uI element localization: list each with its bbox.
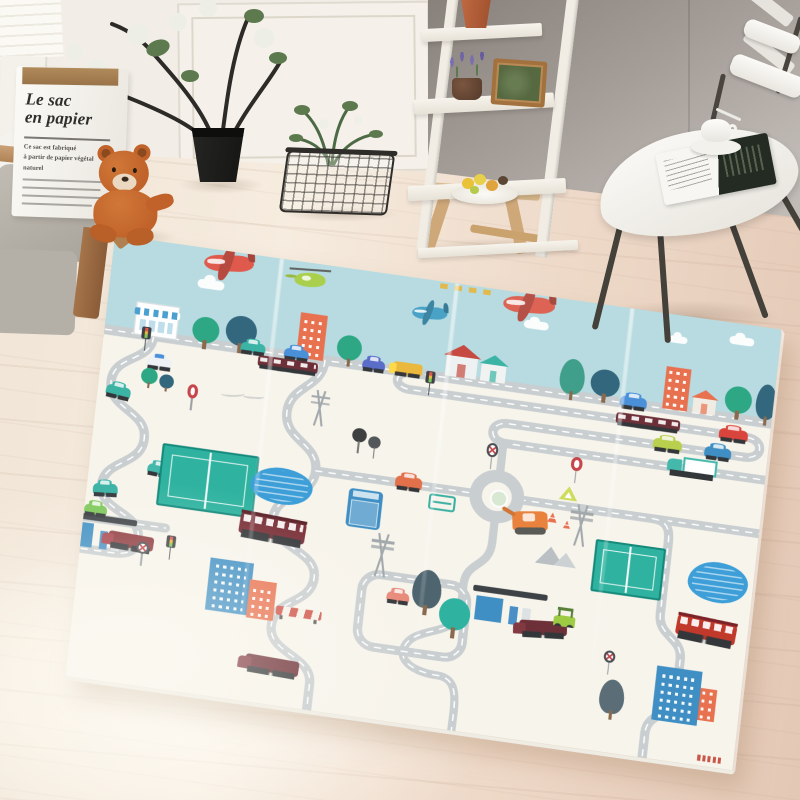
teddy-nose bbox=[121, 177, 128, 182]
mat-item-tree bbox=[437, 596, 472, 632]
mat-item-pond bbox=[686, 558, 750, 606]
mat-item-poplar bbox=[558, 357, 587, 396]
mat-item-heli bbox=[294, 272, 326, 288]
mat-item-brand bbox=[697, 754, 722, 764]
coffee-cup bbox=[701, 119, 731, 142]
mat-item-bus bbox=[675, 612, 738, 646]
mat-item-bldg bbox=[697, 688, 717, 722]
mat-item-cart bbox=[553, 606, 582, 630]
bag-title: Le sac en papier bbox=[25, 90, 94, 128]
fruit-dark bbox=[498, 176, 508, 185]
mat-item-car bbox=[704, 446, 732, 461]
mat-item-tri bbox=[559, 485, 579, 502]
mat-item-house bbox=[692, 396, 716, 415]
mat-item-sign bbox=[183, 383, 200, 411]
mat-item-pylon bbox=[366, 531, 398, 579]
ladder-shelf bbox=[408, 0, 593, 266]
teddy-arm bbox=[144, 191, 175, 213]
mat-item-tree bbox=[159, 373, 175, 389]
mat-item-truck bbox=[244, 653, 300, 677]
mat-item-car bbox=[105, 383, 132, 400]
mat-item-barrier bbox=[276, 605, 322, 620]
chair-leg bbox=[727, 217, 769, 319]
mat-item-signx bbox=[132, 541, 151, 567]
bag-fold bbox=[22, 67, 118, 86]
lime bbox=[470, 186, 479, 194]
lemon bbox=[474, 174, 486, 185]
fruit-plate bbox=[452, 184, 518, 204]
mat-item-truck bbox=[393, 361, 423, 377]
bag-title-line2: en papier bbox=[25, 107, 93, 128]
mat-item-train bbox=[615, 412, 680, 432]
mat-item-car bbox=[240, 341, 266, 355]
mat-item-plane bbox=[412, 306, 448, 320]
shelf-board bbox=[418, 240, 578, 258]
mat-item-car bbox=[84, 503, 108, 516]
white-chair bbox=[585, 15, 800, 345]
mat-item-bldg bbox=[662, 366, 691, 412]
mat-item-car bbox=[93, 483, 118, 496]
mat-item-cone bbox=[546, 512, 559, 524]
mat-item-court bbox=[156, 443, 260, 519]
mat-item-cloud bbox=[197, 278, 225, 291]
mat-item-signx bbox=[600, 650, 618, 676]
mat-item-tree bbox=[336, 334, 364, 363]
picture-frame bbox=[490, 58, 547, 108]
mat-item-poplar bbox=[754, 383, 779, 421]
terracotta-pot bbox=[460, 0, 492, 28]
chair-back-slat bbox=[742, 17, 800, 56]
mat-item-plane bbox=[503, 295, 555, 315]
mat-item-pylon bbox=[307, 389, 332, 428]
mat-item-lolli bbox=[352, 427, 368, 443]
mat-item-sign bbox=[567, 456, 585, 484]
mat-item-signx bbox=[483, 442, 501, 470]
mat-item-poplar bbox=[598, 678, 627, 716]
mat-item-tree bbox=[589, 368, 621, 399]
mat-item-tlight bbox=[164, 535, 176, 560]
mat-item-digger bbox=[512, 511, 548, 531]
mat-item-truckv bbox=[345, 488, 383, 531]
brown-pot bbox=[452, 78, 482, 100]
mat-item-bldg bbox=[651, 665, 702, 725]
shelf-rail bbox=[535, 0, 579, 258]
wire-basket bbox=[279, 150, 396, 216]
mat-item-tree bbox=[191, 315, 221, 345]
mat-item-house bbox=[480, 362, 507, 384]
mat-item-car bbox=[395, 475, 423, 491]
mat-item-pylon bbox=[566, 503, 595, 549]
mat-item-tree bbox=[723, 385, 753, 416]
lemon bbox=[486, 180, 498, 191]
cup-handle bbox=[728, 124, 737, 133]
chair-leg bbox=[657, 229, 671, 343]
mat-item-mtn bbox=[535, 545, 578, 569]
mat-item-rnd bbox=[489, 488, 510, 509]
mat-item-car bbox=[386, 591, 410, 604]
mat-item-script bbox=[220, 386, 265, 404]
mat-item-cloud bbox=[523, 319, 549, 331]
mat-item-lolli bbox=[368, 436, 382, 450]
chair-leg bbox=[592, 220, 625, 330]
teddy-bear bbox=[86, 142, 182, 249]
sofa-seat bbox=[0, 249, 77, 336]
bag-rule bbox=[24, 136, 110, 141]
mat-item-car bbox=[652, 437, 682, 452]
mat-item-plane bbox=[204, 254, 254, 272]
mat-item-tlight bbox=[424, 371, 436, 396]
mat-item-car bbox=[362, 359, 386, 372]
living-room-photo: Le sac en papier Ce sac est fabriqué à p… bbox=[0, 0, 800, 800]
mat-item-car bbox=[718, 427, 748, 442]
mat-item-poplar bbox=[411, 568, 444, 610]
mat-item-bldg bbox=[246, 579, 277, 621]
